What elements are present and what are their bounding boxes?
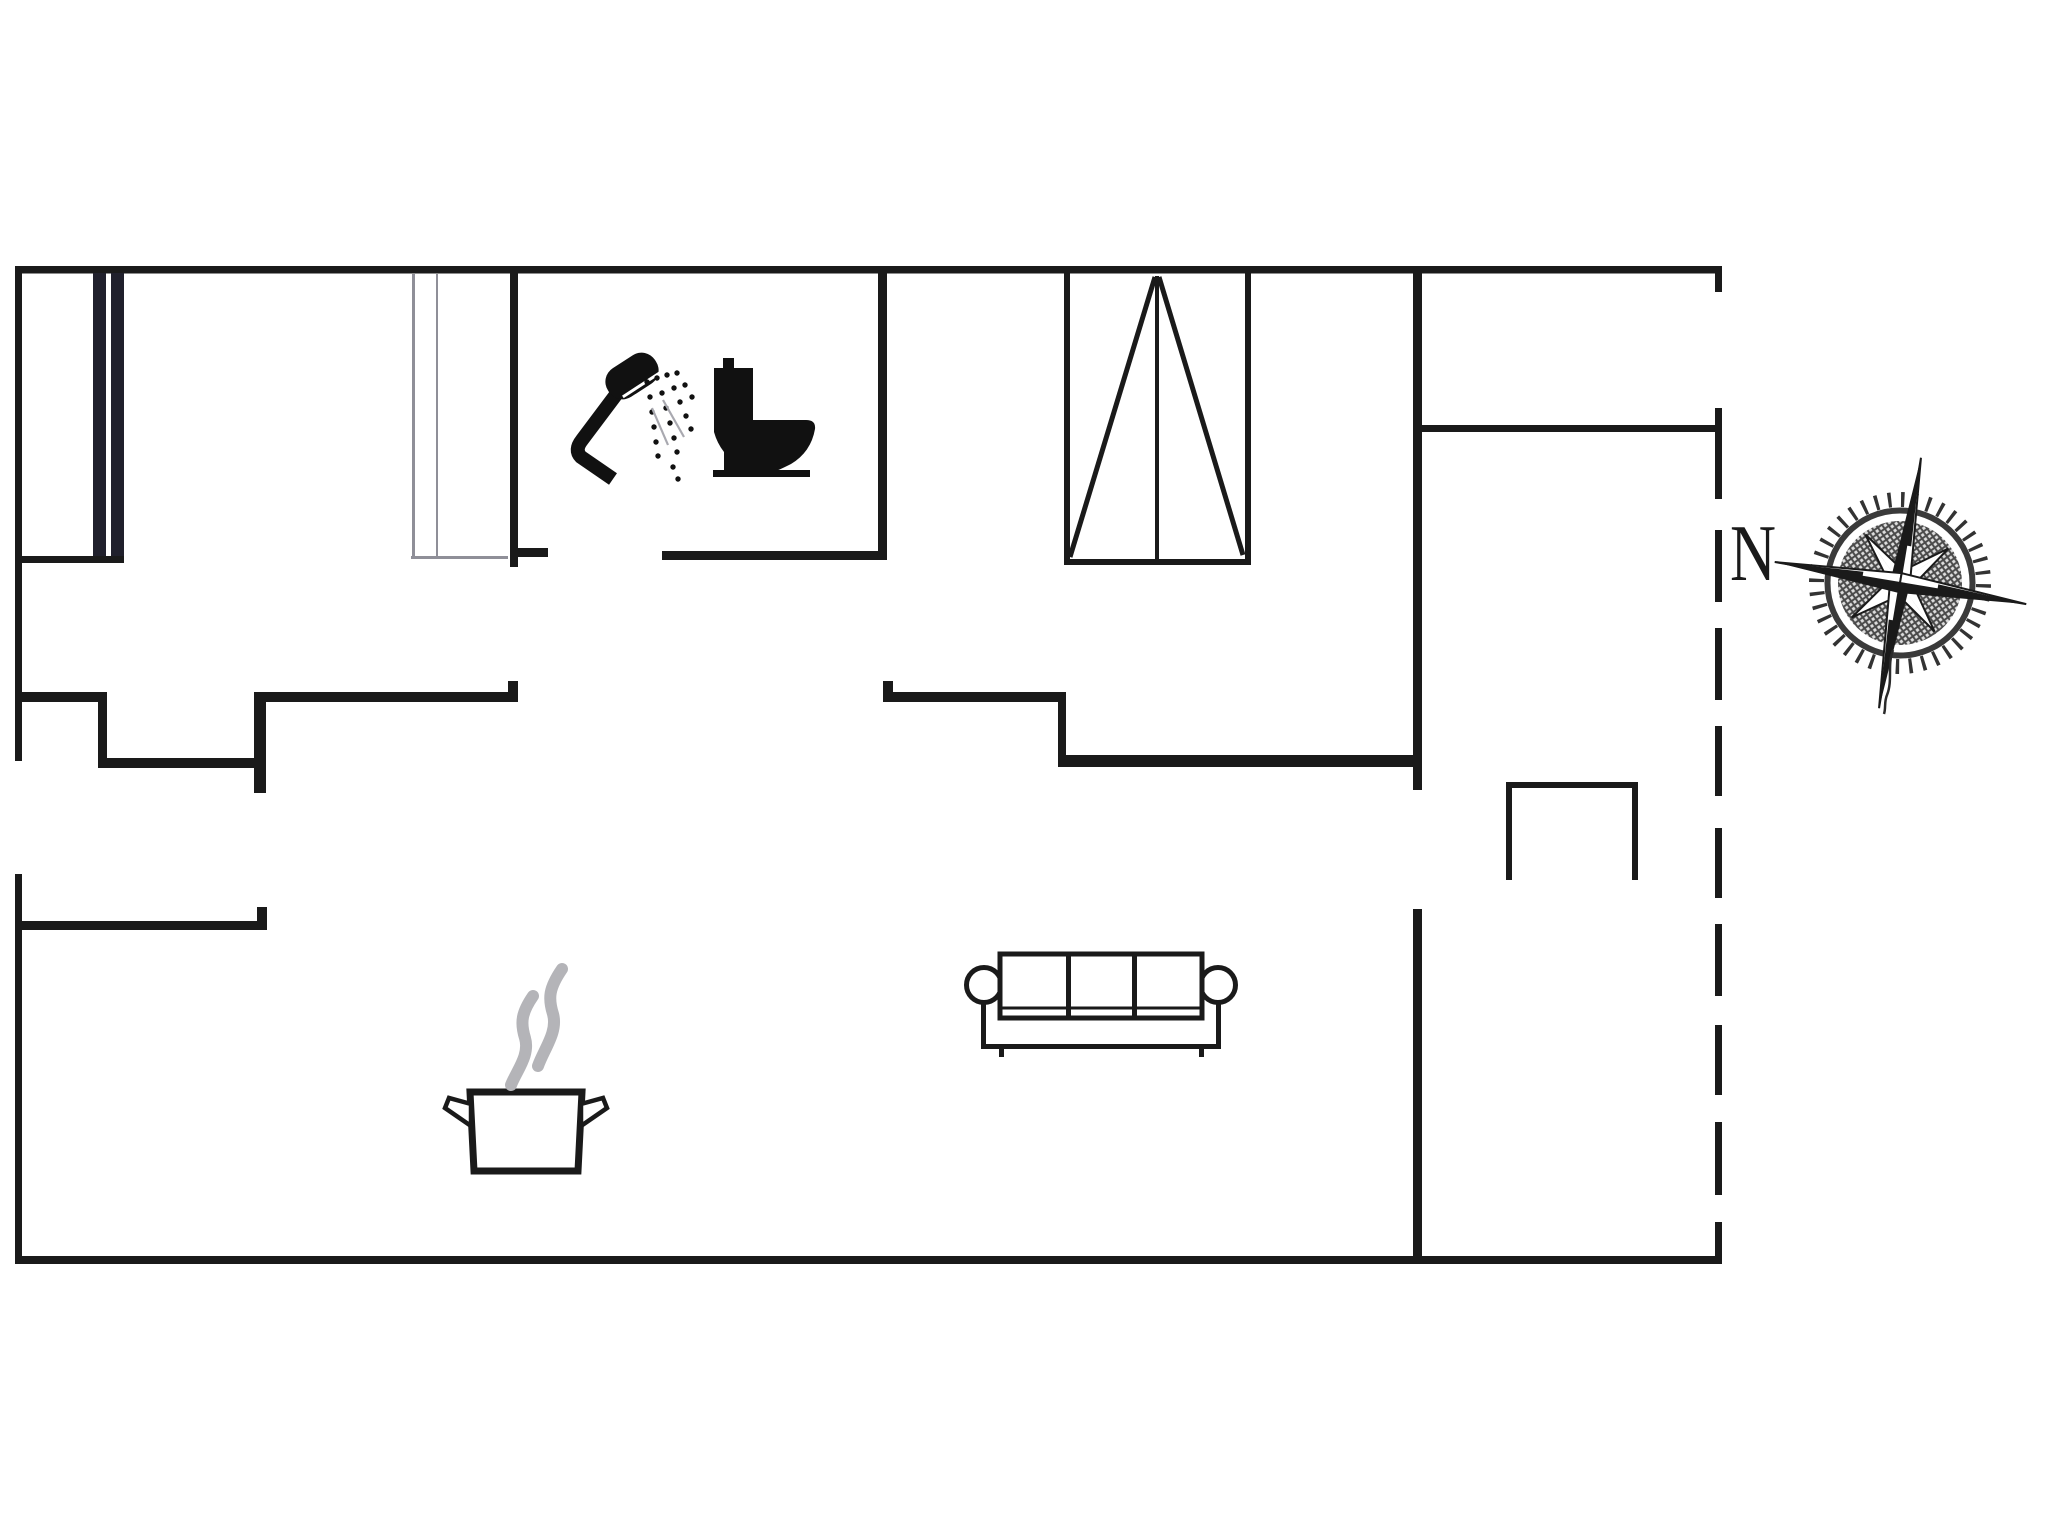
svg-text:N: N	[1730, 510, 1776, 598]
